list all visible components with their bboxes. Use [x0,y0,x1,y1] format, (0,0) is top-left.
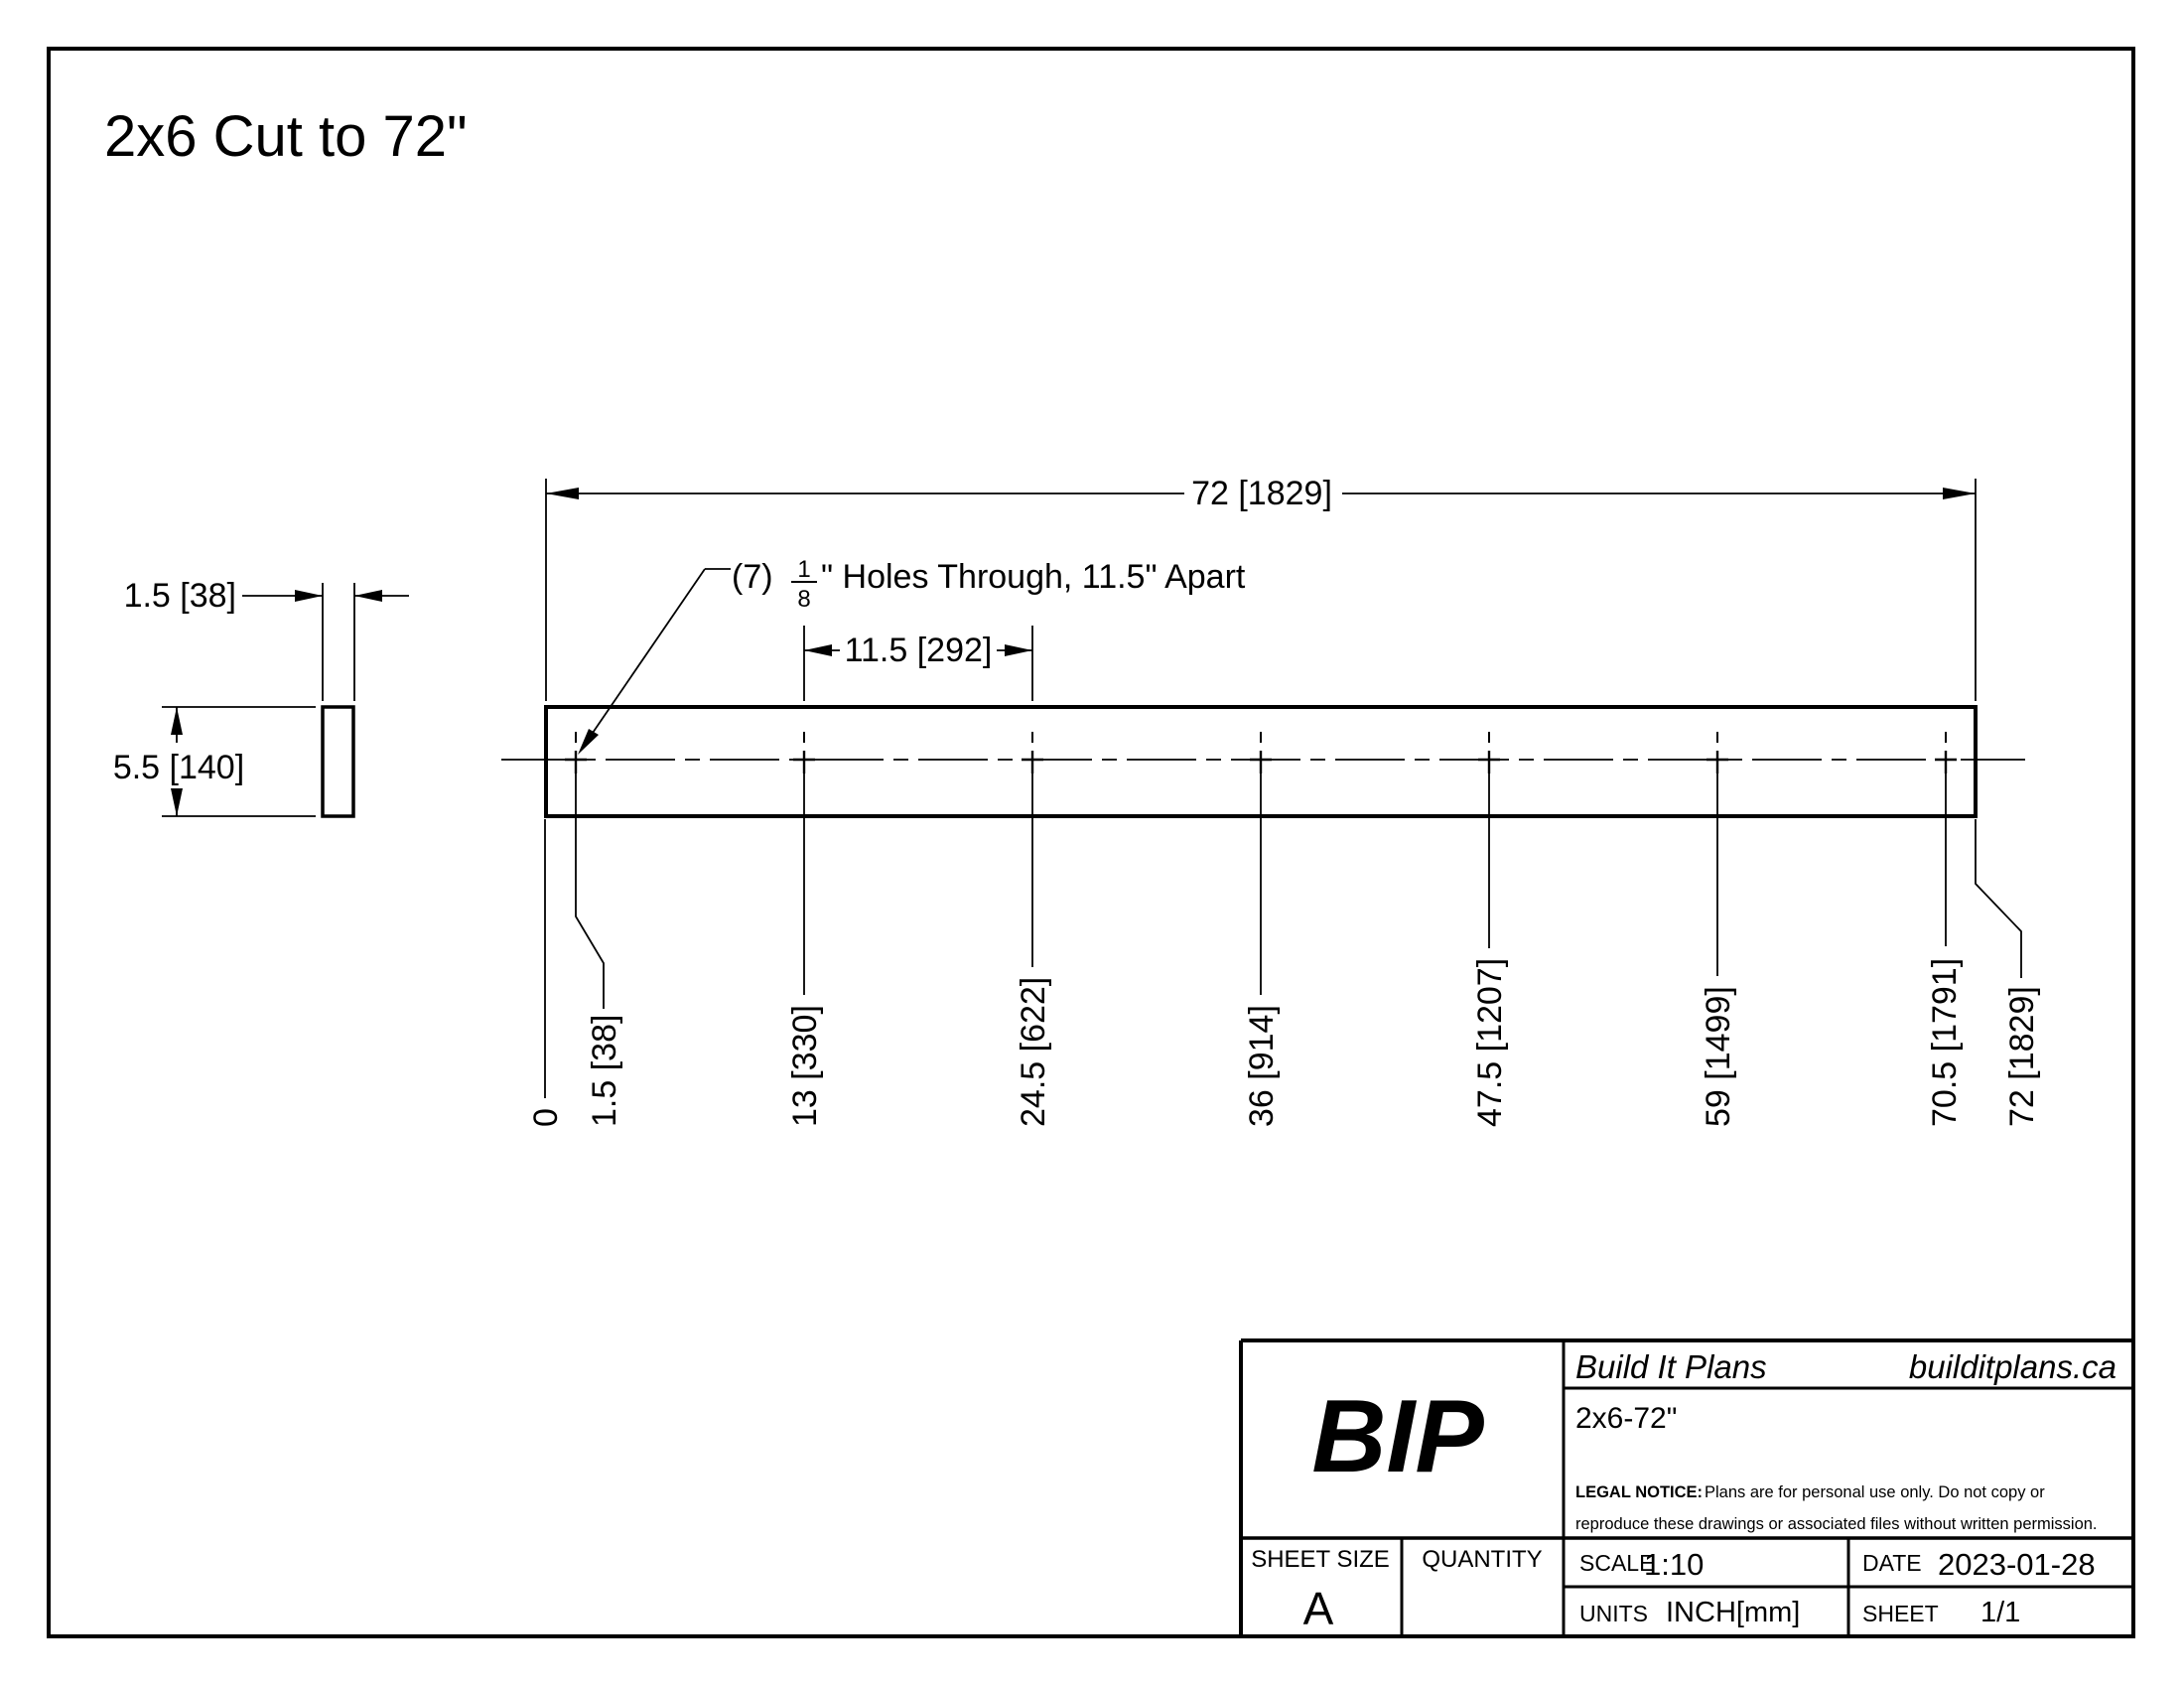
hole-callout-fraction-denominator: 8 [797,586,810,613]
legal-notice-line1: Plans are for personal use only. Do not … [1705,1483,2045,1501]
sheet-value: 1/1 [1980,1597,2020,1628]
ordinate-extension-lines [545,773,2021,1098]
drawing-title: 2x6 Cut to 72" [104,104,468,169]
hole-center-mark [793,732,815,774]
date-label: DATE [1862,1550,1922,1576]
units-label: UNITS [1579,1601,1648,1626]
sheet-label: SHEET [1862,1601,1939,1626]
sheet-size-label: SHEET SIZE [1251,1546,1390,1573]
hole-center-mark [1022,732,1043,774]
hole-callout-fraction-numerator: 1 [797,556,810,583]
ordinate-label: 70.5 [1791] [1926,958,1964,1127]
ordinate-label: 72 [1829] [2003,986,2041,1127]
sheet-size-value: A [1303,1583,1334,1634]
ordinate-label: 0 [527,1108,565,1127]
company-website: builditplans.ca [1909,1348,2116,1385]
side-view: 1.5 [38] 5.5 [140] [113,577,409,816]
hole-center-marks [565,732,1957,774]
hole-center-mark [1478,732,1500,774]
ordinate-label: 13 [330] [786,1005,824,1127]
hole-center-mark [565,732,587,774]
side-view-outline [323,707,353,816]
ordinate-label: 36 [914] [1243,1005,1281,1127]
hole-center-mark [1706,732,1728,774]
page-border [49,49,2133,1636]
hole-callout-leader [578,569,731,755]
side-width-dimension: 1.5 [38] [124,577,236,615]
drawing-sheet: 2x6 Cut to 72" 1.5 [38] 5.5 [140] [0,0,2184,1688]
ordinate-label: 1.5 [38] [586,1015,623,1127]
scale-value: 1:10 [1644,1547,1704,1582]
ordinate-label: 24.5 [622] [1015,977,1052,1127]
hole-center-mark [1250,732,1272,774]
overall-dimension: 72 [1829] [1191,475,1332,512]
company-logo: BIP [1311,1379,1484,1494]
side-width-dimension-lines [242,583,409,701]
units-value: INCH[mm] [1666,1597,1800,1628]
ordinate-labels: 0 1.5 [38] 13 [330] 24.5 [622] 36 [914] … [527,958,2041,1127]
board-view: 72 [1829] 11.5 [292] (7) 1 8 " Holes Thr… [501,475,2041,1127]
part-name: 2x6-72" [1575,1402,1677,1435]
technical-drawing: 2x6 Cut to 72" 1.5 [38] 5.5 [140] [0,0,2184,1688]
hole-callout-prefix: (7) [732,558,773,596]
hole-center-mark [1935,732,1957,774]
quantity-label: QUANTITY [1422,1546,1542,1573]
spacing-dimension: 11.5 [292] [845,632,993,669]
title-block: BIP Build It Plans builditplans.ca 2x6-7… [1241,1340,2133,1636]
ordinate-label: 59 [1499] [1700,986,1737,1127]
company-name: Build It Plans [1575,1348,1767,1385]
legal-notice-label: LEGAL NOTICE: [1575,1483,1703,1501]
ordinate-label: 47.5 [1207] [1471,958,1509,1127]
side-height-dimension: 5.5 [140] [113,749,244,786]
hole-callout-suffix: " Holes Through, 11.5" Apart [821,558,1246,596]
date-value: 2023-01-28 [1938,1547,2096,1582]
legal-notice-line2: reproduce these drawings or associated f… [1575,1515,2098,1533]
